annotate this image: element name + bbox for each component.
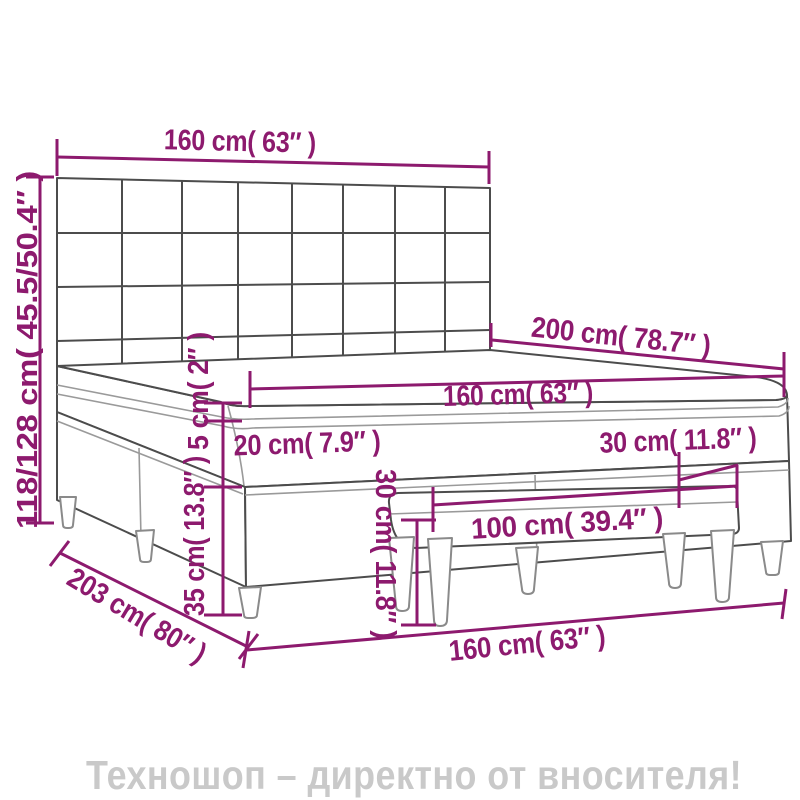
watermark-text: Техношоп – директно от вносителя!	[86, 752, 742, 798]
bed-dimension-diagram: 160 cm( 63″ ) 118/128 cm( 45.5/50.4″ ) 2…	[0, 0, 800, 800]
dim-label-mattress-width: 160 cm( 63″ )	[443, 377, 594, 413]
bed-diagram-svg: 160 cm( 63″ ) 118/128 cm( 45.5/50.4″ ) 2…	[0, 0, 800, 800]
dim-label-mattress-height: 20 cm( 7.9″ )	[233, 425, 381, 462]
dim-label-total-height: 118/128 cm( 45.5/50.4″ )	[12, 171, 44, 529]
bed-leg	[60, 497, 76, 528]
dim-label-bench-height: 30 cm( 11.8″ )	[369, 469, 401, 639]
headboard	[57, 178, 490, 368]
dim-label-headboard-width: 160 cm( 63″ )	[164, 124, 317, 159]
dim-label-base-height: 35 cm( 13.8″ )	[179, 456, 211, 616]
dim-label-side-gap: 30 cm( 11.8″ )	[599, 422, 757, 459]
dim-label-pillow-top-height: 5 cm( 2″ )	[183, 332, 215, 450]
